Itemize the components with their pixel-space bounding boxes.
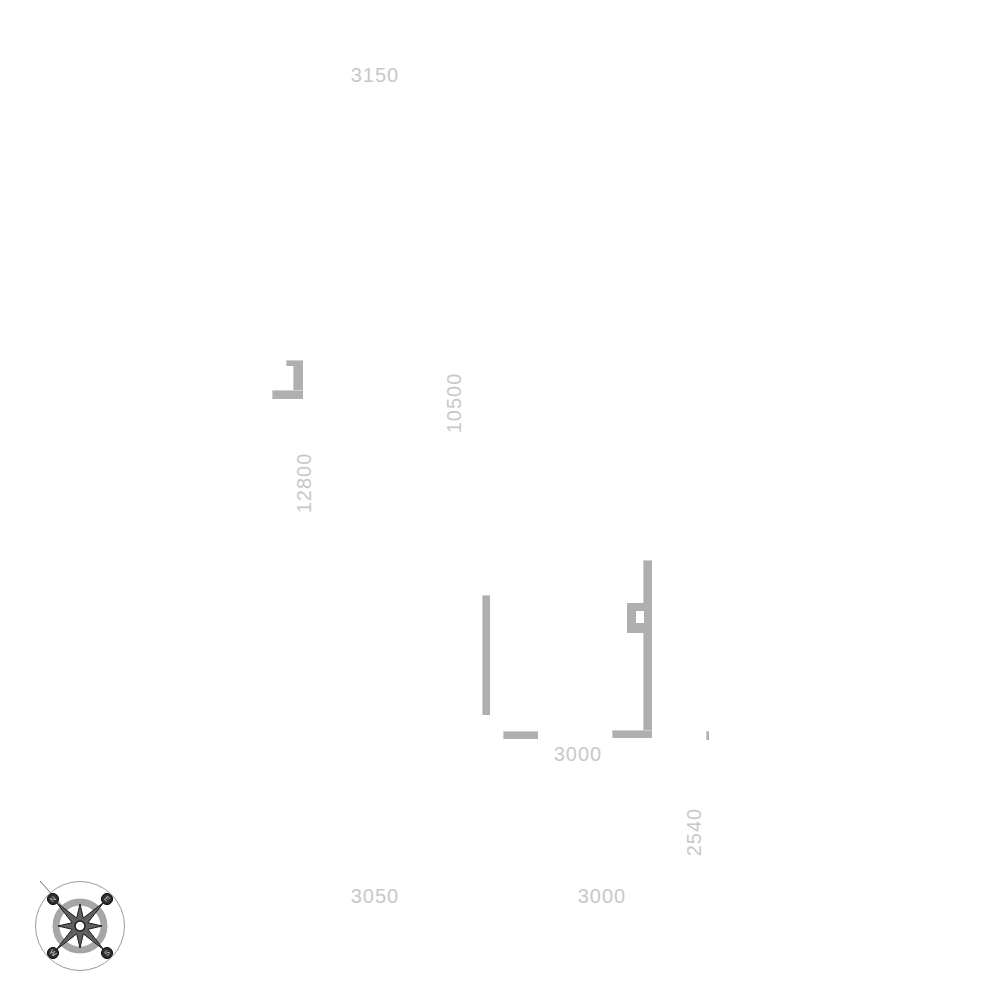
dimension-label-12800[interactable]: 12800 — [293, 453, 316, 514]
wall-column-box[interactable] — [627, 603, 644, 633]
compass-point-north: N — [48, 894, 59, 905]
dimension-label-top[interactable]: 3150 — [351, 64, 400, 87]
wall-segment-right-vertical[interactable] — [643, 560, 652, 738]
wall-segment-left-vertical[interactable] — [482, 595, 490, 715]
compass-point-west: W — [48, 948, 59, 959]
wall-segment-tick[interactable] — [706, 731, 709, 740]
compass-point-east: E — [102, 894, 113, 905]
dimension-label-bottom-3000[interactable]: 3000 — [578, 885, 627, 908]
dimension-label-10500[interactable]: 10500 — [443, 373, 466, 434]
dimension-label-2540[interactable]: 2540 — [683, 808, 706, 857]
compass-point-south: S — [102, 948, 113, 959]
wall-segment-bottom-stub[interactable] — [503, 731, 538, 739]
compass-rose: N E S W — [33, 879, 128, 974]
dimension-label-bottom-3050[interactable]: 3050 — [351, 885, 400, 908]
compass-center-circle — [75, 921, 85, 931]
wall-segment-topleft-flange[interactable] — [286, 360, 294, 366]
wall-segment-topleft-bottom[interactable] — [272, 390, 303, 399]
wall-segment-right-bottom[interactable] — [612, 730, 652, 738]
floor-plan-canvas: 3150 10500 12800 3000 2540 3050 3000 N E… — [0, 0, 1000, 1000]
dimension-label-middle-3000[interactable]: 3000 — [554, 743, 603, 766]
